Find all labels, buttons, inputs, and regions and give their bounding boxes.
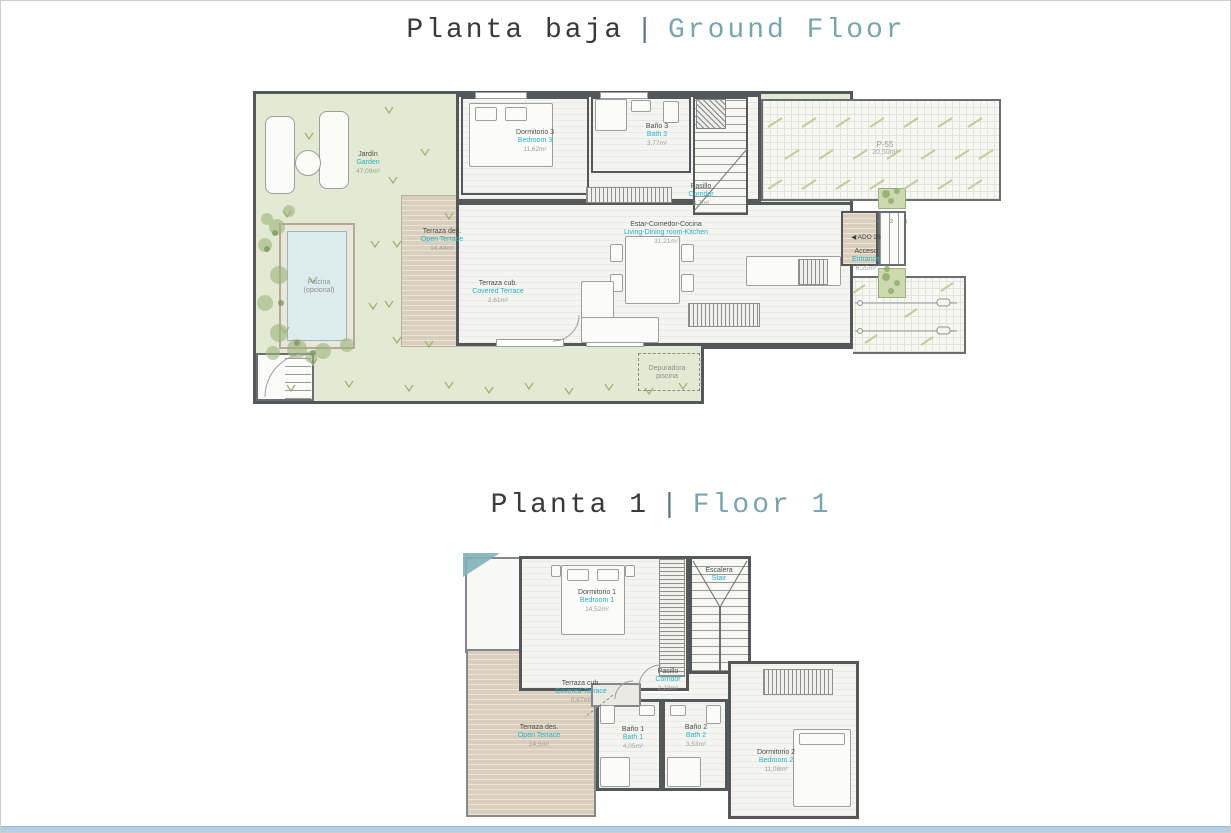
pillow: [597, 569, 619, 581]
bottom-scrollbar[interactable]: [1, 826, 1231, 833]
sun-lounger: [265, 116, 295, 194]
sun-lounger: [319, 111, 349, 189]
parking-label: P-55 20,50m²: [872, 140, 898, 158]
ground-floor-title: Planta baja|Ground Floor: [406, 15, 905, 46]
unit-marker-label: ◀ ADO 26: [851, 234, 881, 242]
duct-hatch: [696, 99, 726, 129]
bedroom3-label: Dormitorio 3 Bedroom 3 11,62m²: [516, 129, 554, 153]
nightstand: [551, 565, 561, 577]
sofa-horizontal: [581, 317, 659, 343]
shower-bath2: [667, 757, 701, 787]
dining-table: [625, 236, 680, 304]
toilet-bath3: [663, 101, 679, 123]
wardrobe-bedroom1: [659, 559, 685, 677]
planter-bottom: [878, 268, 906, 298]
wardrobe-bedroom2: [763, 669, 833, 695]
kitchen-appliance: [798, 259, 828, 285]
corridor-floor1-label: Pasillo Corridor 2,23m²: [655, 668, 680, 692]
bedroom2-label: Dormitorio 2 Bedroom 2 11,08m²: [757, 749, 795, 773]
pillow: [567, 569, 589, 581]
pool-label: Piscina (opcional): [304, 279, 335, 296]
sink-bath3: [631, 100, 651, 112]
shower-bath1: [600, 757, 630, 787]
title-separator: |: [624, 15, 668, 46]
pillow: [475, 107, 497, 121]
planter-top: [878, 188, 906, 209]
pool-equipment-label: Depuradora piscina: [649, 365, 686, 382]
bath2-label: Baño 2 Bath 2 3,53m²: [685, 724, 707, 748]
open-terrace-label: Terraza des. Open Terrace 14,44m²: [421, 228, 463, 252]
open-terrace-floor1-label: Terraza des. Open Terrace 14,5m²: [518, 724, 560, 748]
covered-terrace-label: Terraza cub. Covered Terrace 2,61m²: [472, 280, 524, 304]
floorplan-sheet: Planta baja|Ground Floor: [0, 0, 1231, 833]
sink-bath1: [639, 705, 655, 716]
toilet-bath1: [600, 705, 615, 724]
plot-notch: [701, 346, 853, 404]
title-separator: |: [649, 490, 693, 521]
floor1-title-english: Floor 1: [693, 490, 832, 521]
window-bedroom3: [475, 92, 527, 99]
floor1-title: Planta 1|Floor 1: [491, 490, 832, 521]
toilet-bath2: [706, 705, 721, 724]
bath1-label: Baño 1 Bath 1 4,05m²: [622, 726, 644, 750]
louver-strip: [586, 187, 672, 203]
garden-table: [295, 150, 321, 176]
gate-steps: [285, 355, 311, 399]
garden-label: Jardín Garden 47,09m²: [356, 151, 380, 175]
floor1-plan: Dormitorio 1 Bedroom 1 14,52m² Escalera …: [463, 549, 861, 821]
shower-bath3: [595, 99, 627, 131]
sink-bath2: [670, 705, 686, 716]
chair: [681, 274, 694, 292]
ground-title-spanish: Planta baja: [406, 15, 624, 46]
chair: [681, 244, 694, 262]
living-label: Estar-Comedor-Cocina Living-Dining room-…: [624, 221, 708, 245]
entrance-steps-numbers: 3 2 1: [875, 219, 912, 225]
pillow: [799, 733, 845, 745]
sliding-door-terrace: [496, 339, 564, 347]
chair: [610, 244, 623, 262]
kitchen-island-hatch: [688, 303, 760, 327]
stair-label: Escalera Stair: [705, 567, 732, 584]
entrance-label: Acceso Entrance 6,25m²: [852, 248, 880, 272]
bedroom1-label: Dormitorio 1 Bedroom 1 14,52m²: [578, 589, 616, 613]
floor1-title-spanish: Planta 1: [491, 490, 649, 521]
ground-title-english: Ground Floor: [668, 15, 906, 46]
window-bath3: [600, 92, 648, 99]
rear-patio: [846, 276, 966, 354]
pillow: [505, 107, 527, 121]
corridor-ground-label: Pasillo Corridor 3,7m²: [688, 183, 713, 207]
side-wall-strip: [465, 557, 521, 653]
nightstand: [625, 565, 635, 577]
covered-terrace-floor1-label: Terraza cub. Covered Terrace 0,67m²: [555, 680, 607, 704]
ground-floor-plan: Jardín Garden 47,09m² Piscina (opcional)…: [253, 91, 1001, 406]
bath3-label: Baño 3 Bath 3 3,77m²: [646, 123, 668, 147]
